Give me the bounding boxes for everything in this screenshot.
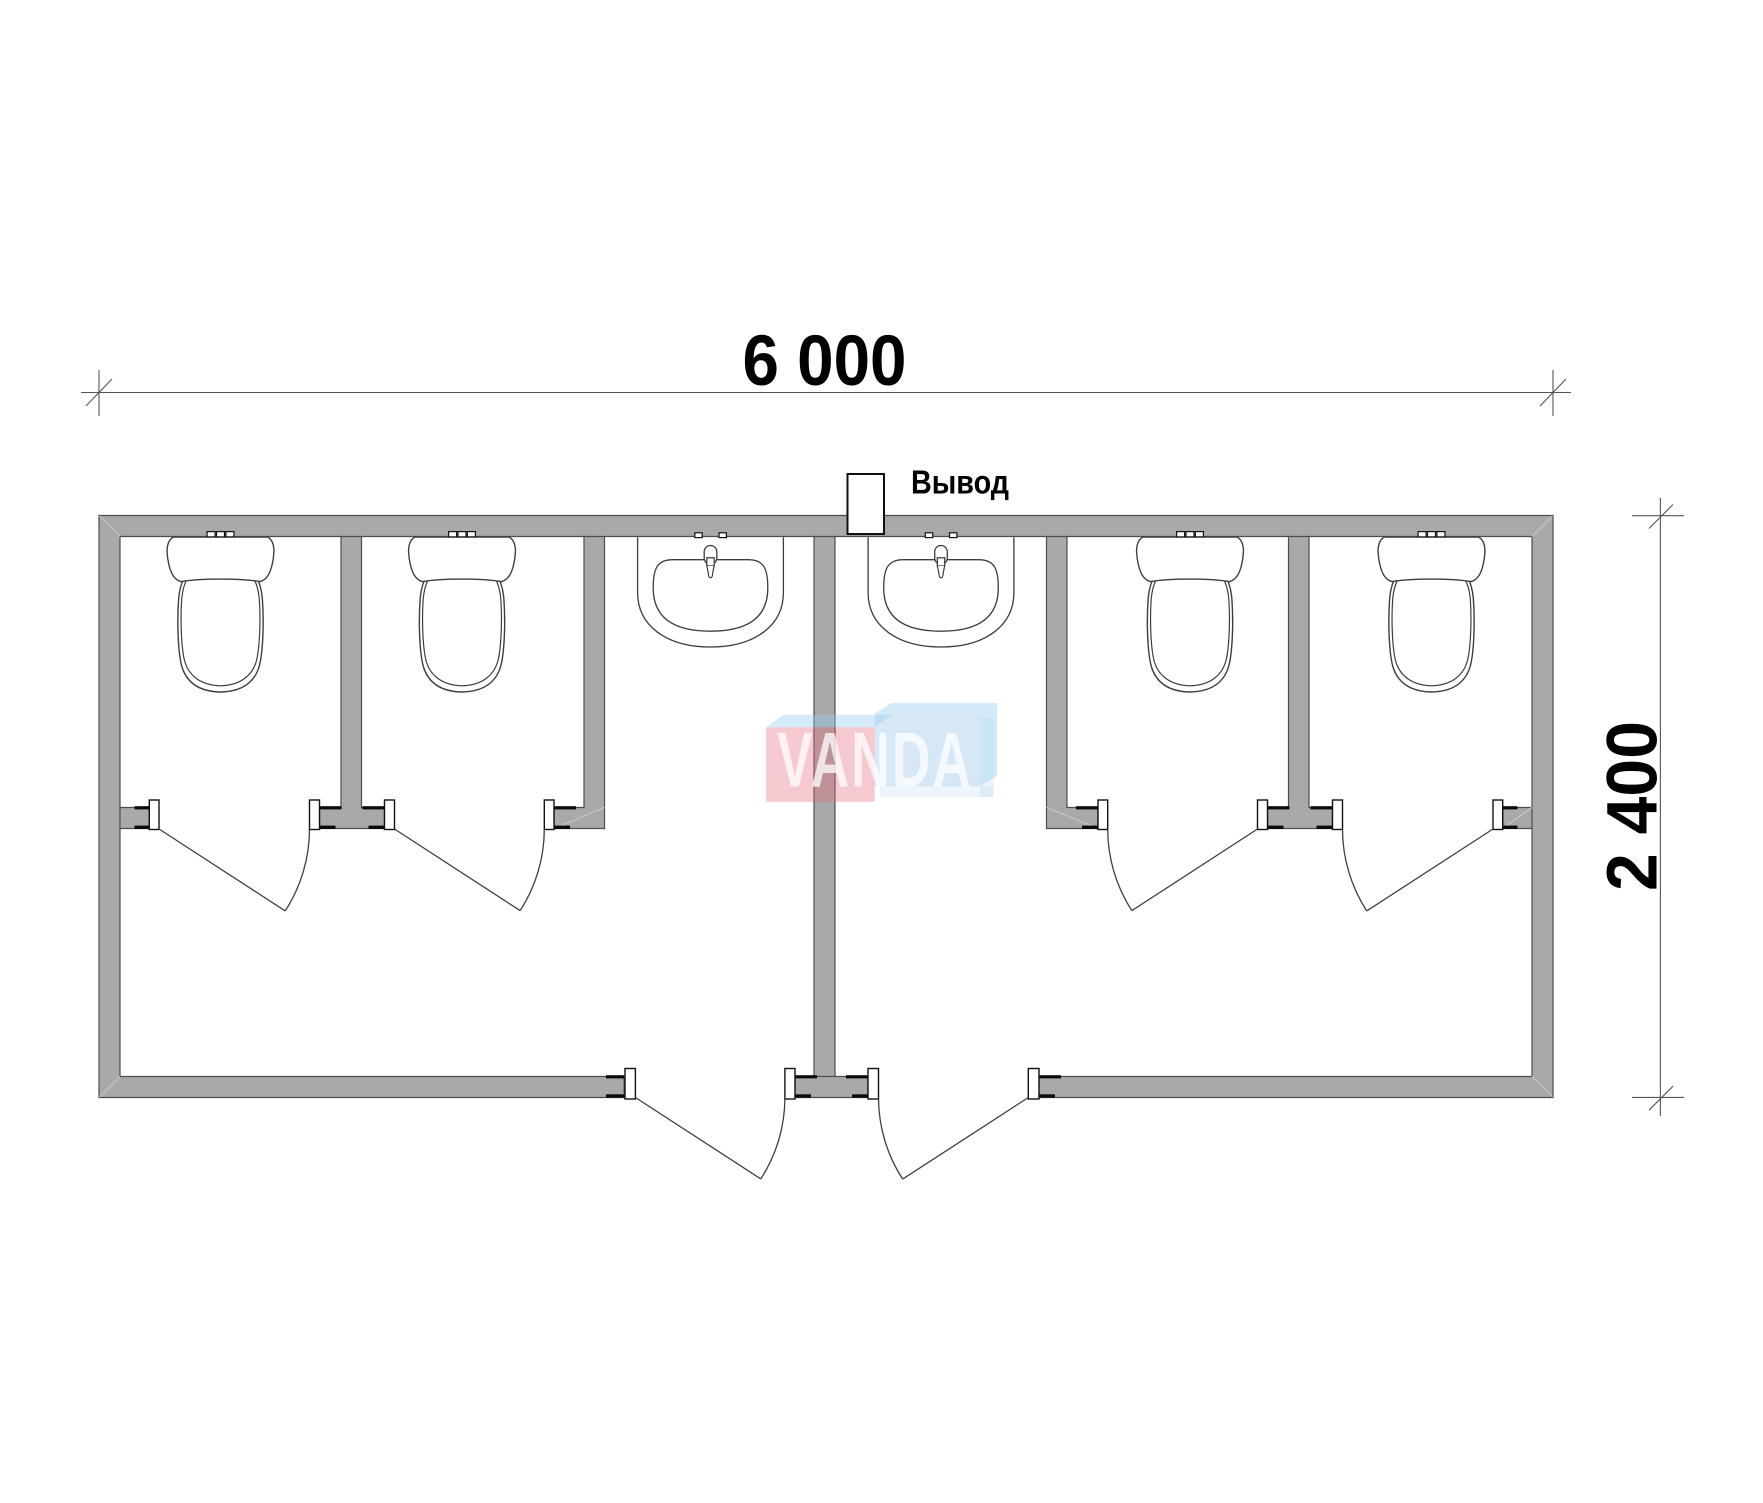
svg-text:2 400: 2 400 <box>1594 721 1673 891</box>
svg-text:VANDA: VANDA <box>777 718 973 804</box>
svg-text:Вывод: Вывод <box>911 465 1009 502</box>
svg-text:6 000: 6 000 <box>743 322 907 401</box>
